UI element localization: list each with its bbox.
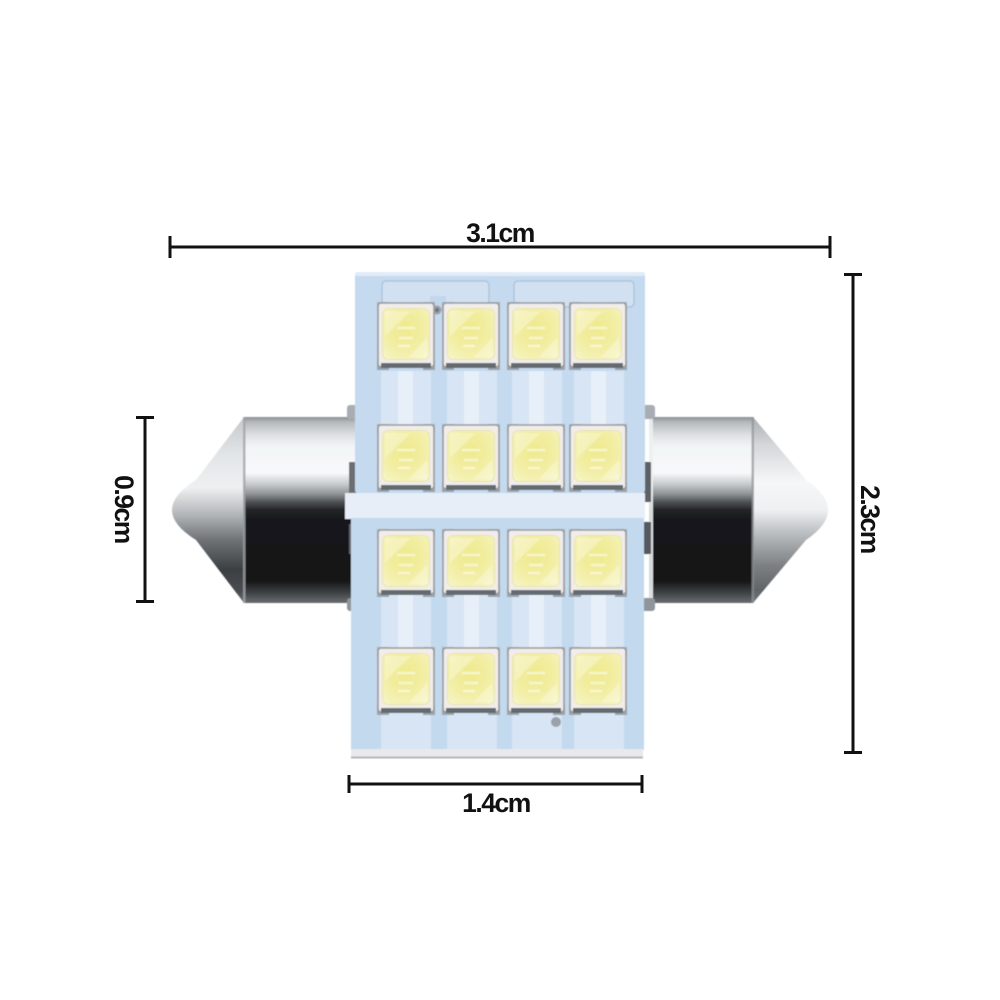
svg-text:0.9cm: 0.9cm [109,475,139,543]
svg-text:1.4cm: 1.4cm [462,788,530,818]
svg-text:3.1cm: 3.1cm [466,218,534,248]
svg-text:2.3cm: 2.3cm [855,485,885,553]
